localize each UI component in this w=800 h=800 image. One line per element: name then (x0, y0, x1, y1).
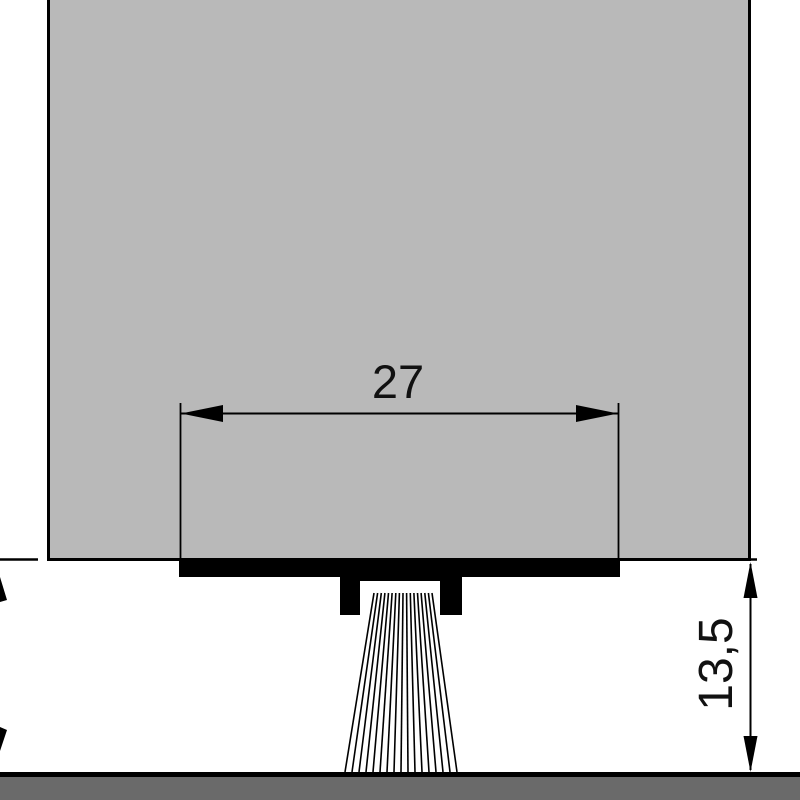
door-panel (47, 0, 751, 561)
bristle-line (401, 593, 403, 772)
bristle-line (421, 593, 436, 772)
bristle-line (380, 593, 392, 772)
bristle-line (345, 593, 374, 772)
bristle-line (428, 593, 450, 772)
width-dimension-label: 27 (372, 358, 424, 405)
floor-surface (0, 777, 800, 800)
brush-slot (360, 581, 440, 615)
clipped-arrow-remnant-top (0, 577, 7, 602)
bristle-line (352, 593, 378, 772)
height-dimension-label: 13,5 (693, 617, 741, 710)
bristle-line (387, 593, 396, 772)
clipped-arrow-remnant-bottom (0, 727, 7, 751)
bristle-line (359, 593, 381, 772)
seal-profile-bar (179, 558, 620, 577)
bristle-line (432, 593, 457, 772)
dimension-arrow-height-top (744, 562, 758, 598)
bristle-line (410, 593, 415, 772)
bristle-line (407, 593, 408, 772)
bristle-line (373, 593, 389, 772)
bristle-line (425, 593, 443, 772)
bristle-line (418, 593, 430, 772)
bristle-line (366, 593, 385, 772)
dimension-arrow-height-bottom (744, 736, 758, 772)
brush-bristles (345, 593, 457, 772)
bristle-line (394, 593, 399, 772)
drawing-canvas: 27 13,5 (0, 0, 800, 800)
bristle-line (414, 593, 422, 772)
